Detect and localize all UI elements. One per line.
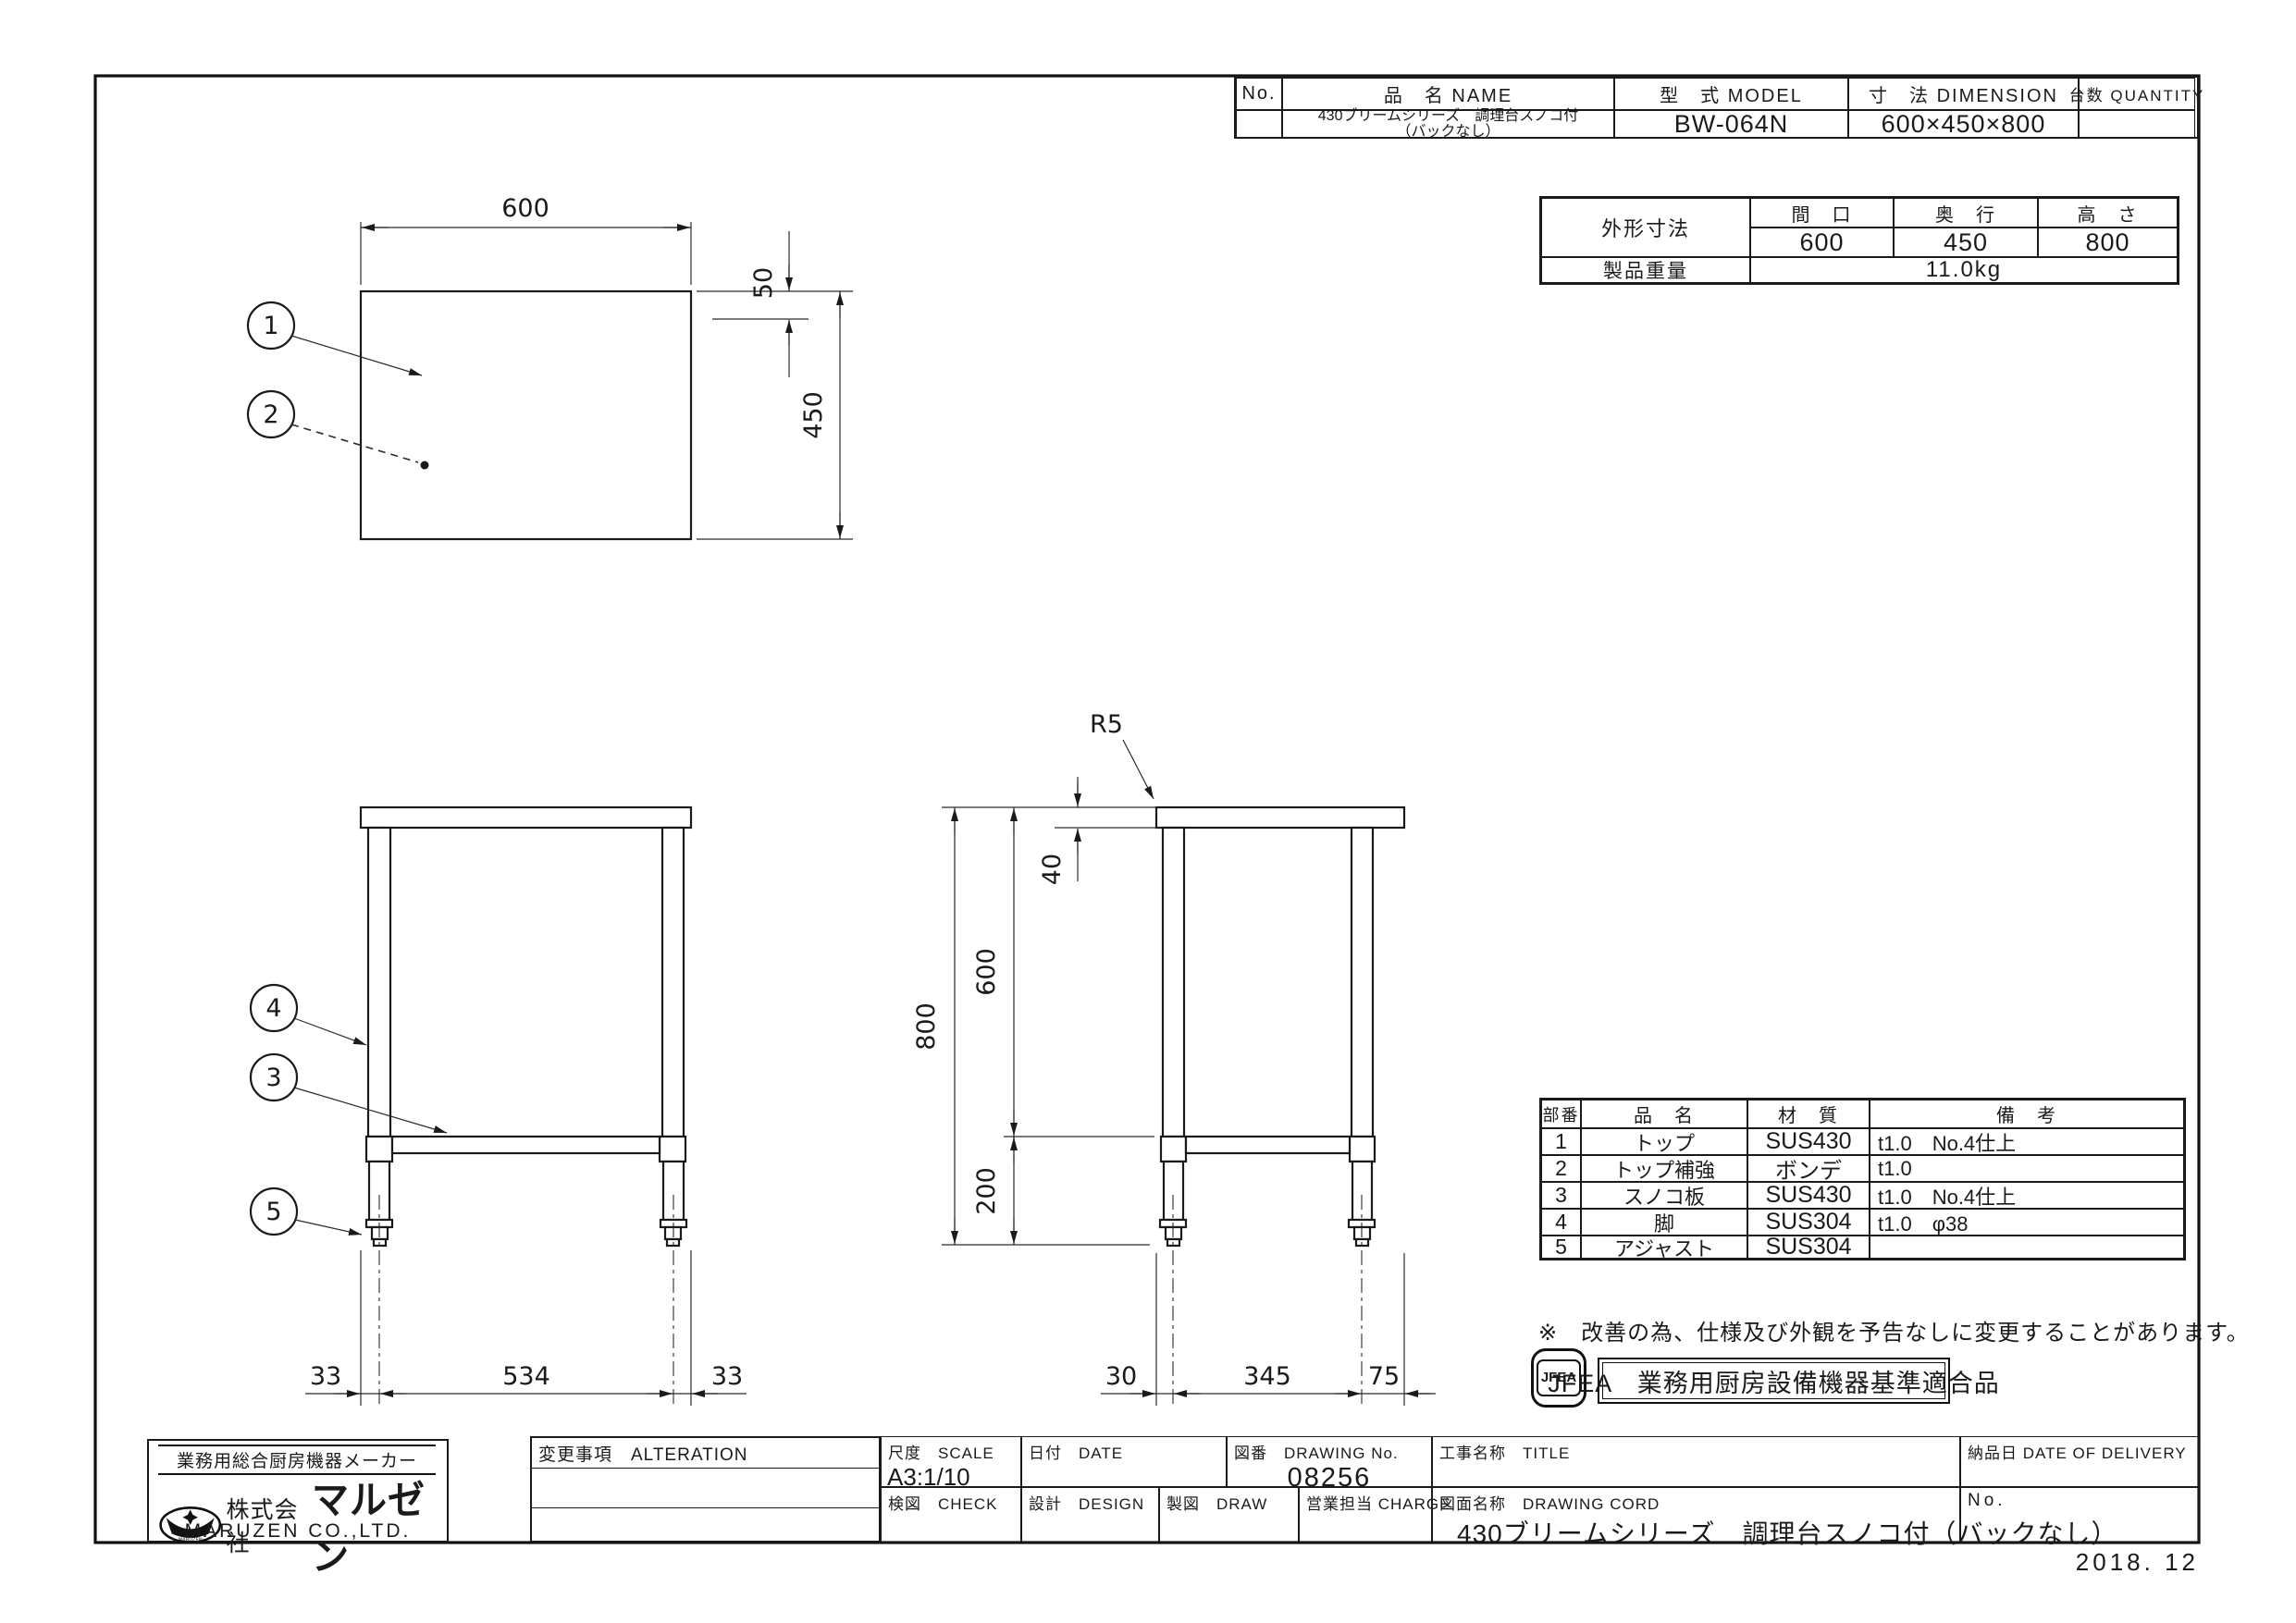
spec-quantity-header: 台数 QUANTITY xyxy=(2079,78,2195,110)
outline-depth-header: 奥 行 xyxy=(1894,198,2038,227)
spec-quantity-value xyxy=(2079,110,2195,139)
parts-header-material: 材 質 xyxy=(1747,1100,1870,1128)
outline-title: 外形寸法 xyxy=(1541,198,1750,257)
parts-row-material: SUS430 xyxy=(1747,1182,1870,1209)
parts-row-no: 1 xyxy=(1541,1128,1581,1155)
front-span-dim: 534 xyxy=(502,1362,550,1391)
side-front-offset-dim: 30 xyxy=(1105,1362,1137,1391)
spec-name-value: 430ブリームシリーズ 調理台スノコ付 （バックなし） xyxy=(1282,110,1614,139)
draw-cell: 製図 DRAW xyxy=(1159,1487,1299,1543)
company-block: 業務用総合厨房機器メーカー MARUZEN 株式会社 マルゼン MARUZEN … xyxy=(147,1439,449,1543)
outline-dimension-table: 外形寸法 間 口 奥 行 高 さ 600 450 800 製品重量 11.0kg xyxy=(1539,196,2179,285)
parts-header-name: 品 名 xyxy=(1581,1100,1747,1128)
svg-text:4: 4 xyxy=(265,994,281,1023)
drawing-name-cell: 図面名称 DRAWING CORD 430ブリームシリーズ 調理台スノコ付（バッ… xyxy=(1432,1487,1960,1543)
parts-row-remarks: t1.0 No.4仕上 xyxy=(1870,1182,2184,1209)
spec-no-value xyxy=(1236,110,1282,139)
side-view: R5 800 600 200 40 xyxy=(912,710,1436,1408)
parts-row-material: SUS430 xyxy=(1747,1128,1870,1155)
svg-text:3: 3 xyxy=(265,1064,281,1092)
svg-text:1: 1 xyxy=(263,312,278,340)
front-right-dim: 33 xyxy=(711,1362,743,1391)
drawing-sheet: 600 50 450 1 2 xyxy=(0,0,2296,1623)
plan-tabletop xyxy=(361,291,691,539)
parts-row-remarks: t1.0 No.4仕上 xyxy=(1870,1128,2184,1155)
parts-row-remarks: t1.0 xyxy=(1870,1155,2184,1182)
plan-depth-dim: 450 xyxy=(799,391,828,439)
no-cell: No. xyxy=(1960,1487,2199,1543)
drawing-name-value: 430ブリームシリーズ 調理台スノコ付（バックなし） xyxy=(1433,1514,1959,1551)
outline-width-value: 600 xyxy=(1750,227,1894,257)
side-rear-dim: 75 xyxy=(1368,1362,1400,1391)
parts-row-name: スノコ板 xyxy=(1581,1182,1747,1209)
parts-row-no: 5 xyxy=(1541,1236,1581,1259)
company-english-name: MARUZEN CO.,LTD. xyxy=(149,1520,447,1543)
parts-row-material: SUS304 xyxy=(1747,1236,1870,1259)
alteration-box: 変更事項 ALTERATION xyxy=(530,1436,881,1543)
parts-row-no: 3 xyxy=(1541,1182,1581,1209)
alteration-header: 変更事項 ALTERATION xyxy=(532,1438,879,1469)
outline-height-header: 高 さ xyxy=(2038,198,2178,227)
side-total-dim: 800 xyxy=(912,1002,941,1051)
outline-weight-label: 製品重量 xyxy=(1541,257,1750,283)
spec-table: No. 品 名 NAME 型 式 MODEL 寸 法 DIMENSION 台数 … xyxy=(1234,76,2199,139)
alteration-row xyxy=(532,1469,879,1508)
parts-row-name: トップ xyxy=(1581,1128,1747,1155)
outline-weight-value: 11.0kg xyxy=(1750,257,2178,283)
svg-text:5: 5 xyxy=(265,1198,281,1226)
outline-height-value: 800 xyxy=(2038,227,2178,257)
parts-row-material: ボンデ xyxy=(1747,1155,1870,1182)
parts-row-no: 2 xyxy=(1541,1155,1581,1182)
parts-header-no: 部番 xyxy=(1541,1100,1581,1128)
jfea-cert-box: JFEA 業務用厨房設備機器基準適合品 xyxy=(1598,1358,1950,1404)
disclaimer-note: ※ 改善の為、仕様及び外観を予告なしに変更することがあります。 xyxy=(1538,1314,2250,1346)
scale-cell: 尺度 SCALE A3:1/10 xyxy=(881,1436,1021,1487)
parts-row-no: 4 xyxy=(1541,1209,1581,1236)
side-radius-label: R5 xyxy=(1090,710,1123,739)
spec-model-value: BW-064N xyxy=(1614,110,1848,139)
side-upper-dim: 600 xyxy=(972,948,1001,996)
plan-view: 600 50 450 1 2 xyxy=(248,194,853,539)
spec-dimension-value: 600×450×800 xyxy=(1848,110,2079,139)
svg-text:2: 2 xyxy=(263,400,278,429)
parts-row-name: アジャスト xyxy=(1581,1236,1747,1259)
spec-name-header: 品 名 NAME xyxy=(1282,78,1614,110)
design-cell: 設計 DESIGN xyxy=(1021,1487,1159,1543)
drawing-no-cell: 図番 DRAWING No. 08256 xyxy=(1227,1436,1432,1487)
front-view: 33 534 33 4 3 5 xyxy=(251,807,747,1408)
parts-table: 部番 品 名 材 質 備 考 1 トップ SUS430 t1.0 No.4仕上 … xyxy=(1539,1098,2186,1260)
side-top-thickness-dim: 40 xyxy=(1038,854,1067,885)
spec-model-header: 型 式 MODEL xyxy=(1614,78,1848,110)
outline-depth-value: 450 xyxy=(1894,227,2038,257)
front-left-dim: 33 xyxy=(310,1362,341,1391)
revision-date-stamp: 2018. 12 xyxy=(1980,1548,2199,1577)
date-cell: 日付 DATE xyxy=(1021,1436,1227,1487)
parts-row-material: SUS304 xyxy=(1747,1209,1870,1236)
spec-no-header: No. xyxy=(1236,78,1282,110)
project-title-cell: 工事名称 TITLE xyxy=(1432,1436,1960,1487)
spec-dimension-header: 寸 法 DIMENSION xyxy=(1848,78,2079,110)
side-lower-dim: 200 xyxy=(972,1167,1001,1215)
check-cell: 検図 CHECK xyxy=(881,1487,1021,1543)
parts-header-remarks: 備 考 xyxy=(1870,1100,2184,1128)
parts-row-remarks: t1.0 φ38 xyxy=(1870,1209,2184,1236)
parts-row-remarks xyxy=(1870,1236,2184,1259)
plan-width-dim: 600 xyxy=(501,194,549,223)
side-span-dim: 345 xyxy=(1243,1362,1291,1391)
charge-cell: 営業担当 CHARGE xyxy=(1299,1487,1432,1543)
outline-width-header: 間 口 xyxy=(1750,198,1894,227)
plan-edge-dim: 50 xyxy=(749,267,778,299)
delivery-date-cell: 納品日 DATE OF DELIVERY xyxy=(1960,1436,2199,1487)
parts-row-name: トップ補強 xyxy=(1581,1155,1747,1182)
